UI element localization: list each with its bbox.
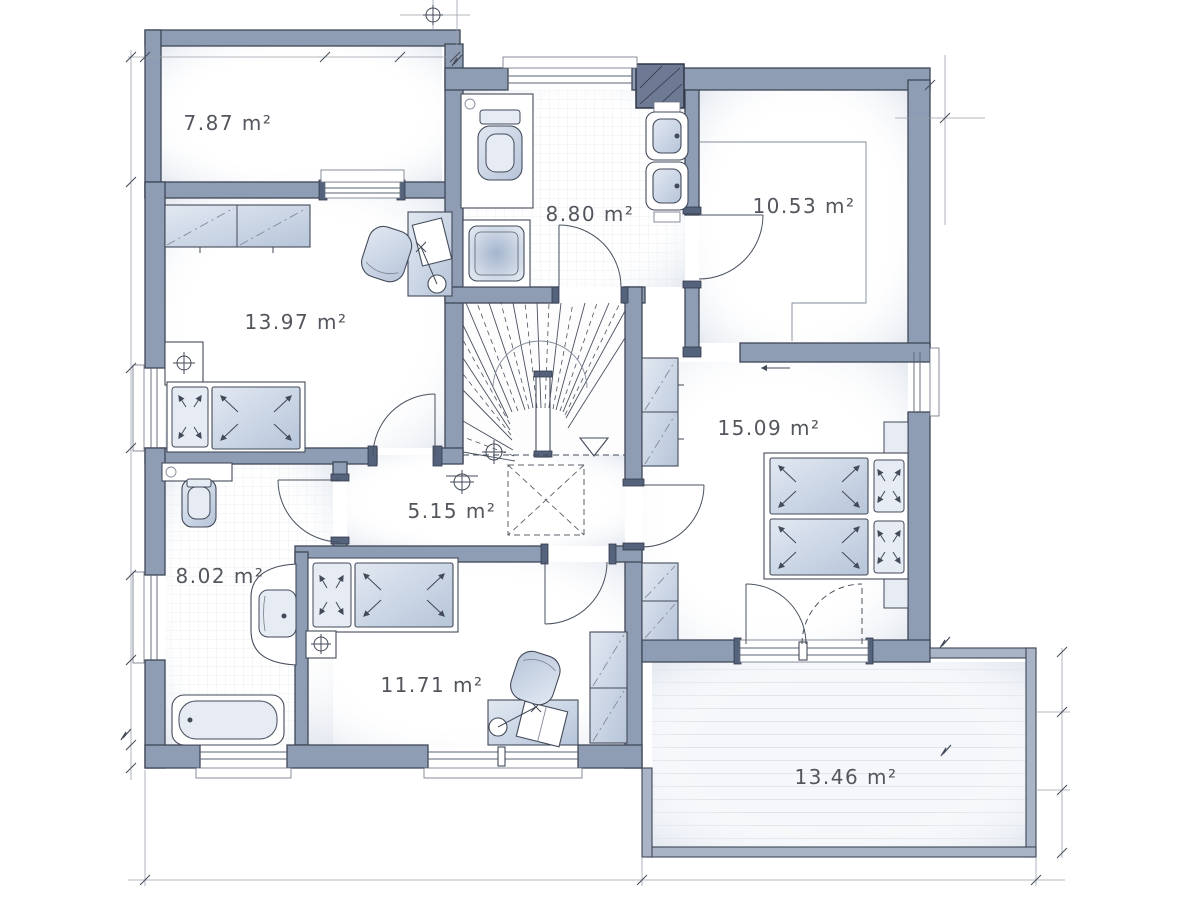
bed-single-bottom: [308, 558, 458, 632]
area-label-room-top-right: 10.53 m²: [752, 194, 855, 218]
floor-terrace-shade: [652, 662, 1026, 847]
wall-1053-1509: [740, 343, 930, 362]
area-label-bathroom-top: 8.80 m²: [546, 202, 635, 226]
radiator-bedroom-bottom: [306, 631, 336, 658]
area-label-balcony-top-left: 7.87 m²: [184, 111, 273, 135]
nightstand-top: [884, 422, 908, 454]
wall-1509-south-a: [642, 640, 740, 662]
window-left-2: [133, 572, 157, 663]
area-label-bedroom-left: 13.97 m²: [244, 310, 347, 334]
wall-1509-south-b: [868, 640, 930, 662]
wall-balcony-bottom-a: [145, 182, 325, 198]
area-label-hallway: 5.15 m²: [408, 499, 497, 523]
window-left-1: [133, 365, 157, 451]
desk-bedroom-left: [408, 212, 452, 296]
sink-double: [646, 102, 688, 222]
floor-plan: 7.87 m² 8.80 m² 10.53 m² 13.97 m² 15.09 …: [0, 0, 1200, 900]
toilet-top: [461, 94, 533, 208]
wall-house-bottom-c: [578, 745, 642, 768]
bed-double: [764, 453, 908, 579]
area-label-bedroom-right: 15.09 m²: [717, 416, 820, 440]
wardrobe-bedroom-bottom: [590, 632, 627, 743]
wardrobe-right-bottom: [642, 563, 678, 640]
shower: [463, 220, 530, 287]
bathtub: [172, 695, 284, 745]
area-label-terrace: 13.46 m²: [794, 765, 897, 789]
area-label-bedroom-bottom: 11.71 m²: [380, 673, 483, 697]
wall-balcony-top: [145, 30, 460, 46]
window-bottom-1: [196, 752, 291, 778]
french-door-terrace: [740, 640, 868, 662]
wall-bath-south-a: [445, 287, 558, 303]
railing-terrace-right: [1026, 648, 1036, 857]
survey-symbol-top: [423, 5, 443, 25]
window-top: [503, 57, 637, 83]
desk-bedroom-bottom: [488, 700, 578, 747]
railing-terrace-top: [930, 648, 1036, 658]
window-bottom-2: [424, 747, 582, 778]
railing-terrace-bottom: [648, 847, 1036, 857]
stair-newel: [536, 373, 550, 457]
wall-stair-east-a: [625, 287, 642, 485]
wardrobe-right-top: [642, 358, 684, 466]
bed-single-left: [167, 382, 305, 452]
wall-bath-east-b: [685, 287, 699, 355]
wall-house-bottom-a: [145, 745, 200, 768]
chimney: [636, 64, 684, 108]
wall-house-east-b: [908, 412, 930, 650]
balcony-door: [321, 170, 404, 198]
area-label-bathroom-left: 8.02 m²: [176, 564, 265, 588]
wall-house-east-a: [908, 80, 930, 352]
wardrobe-bedroom-left: [165, 205, 310, 253]
wall-house-left-a: [145, 182, 165, 368]
nightstand-bottom: [884, 576, 908, 608]
wall-house-top-a: [445, 68, 508, 90]
wall-house-bottom-b: [287, 745, 428, 768]
radiator-bedroom-left: [165, 342, 203, 385]
railing-terrace-left: [642, 768, 652, 857]
